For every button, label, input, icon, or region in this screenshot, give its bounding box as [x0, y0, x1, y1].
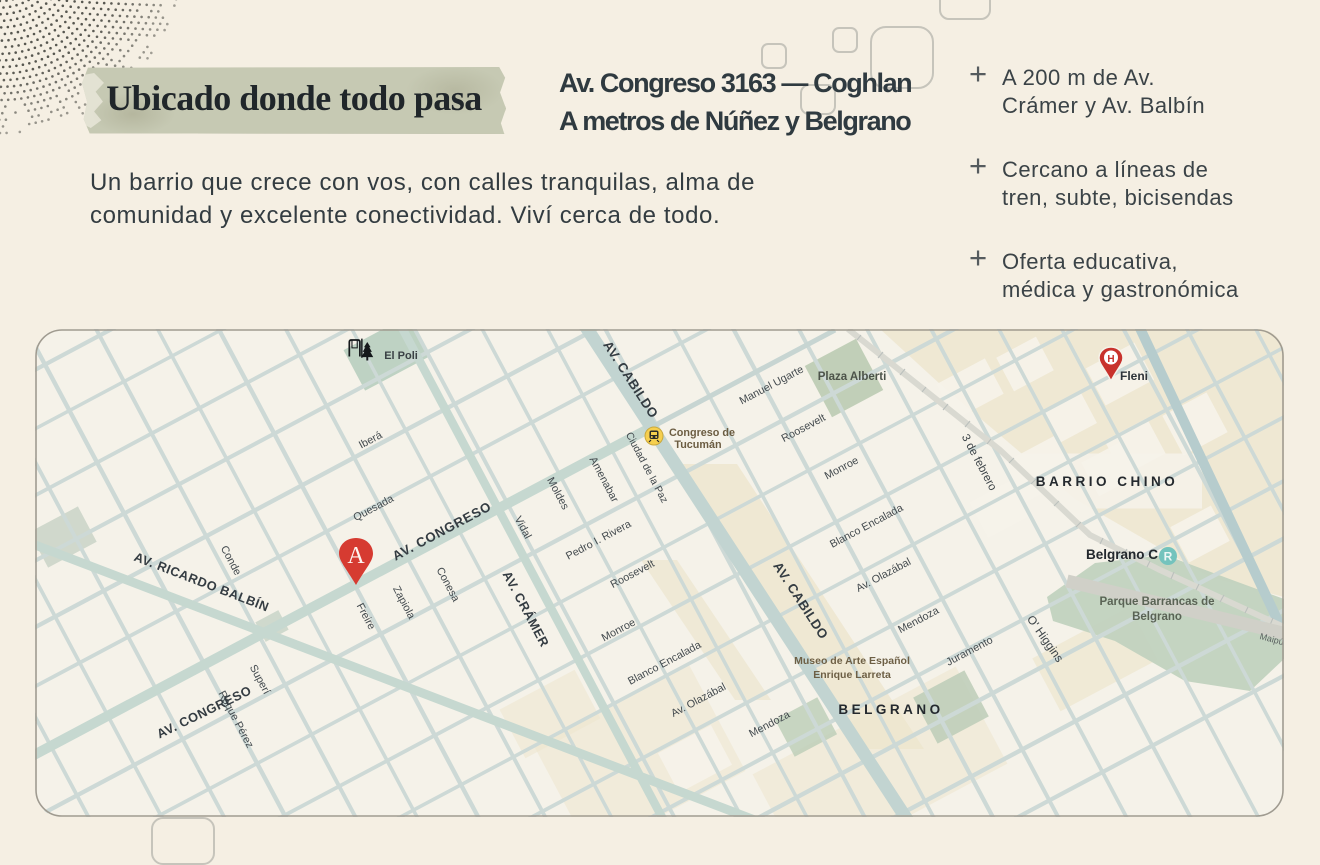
svg-text:Belgrano C: Belgrano C — [1086, 547, 1158, 562]
svg-text:Tucumán: Tucumán — [674, 439, 721, 451]
svg-text:El Poli: El Poli — [384, 350, 418, 362]
svg-text:Fleni: Fleni — [1120, 369, 1148, 383]
svg-text:BARRIO CHINO: BARRIO CHINO — [1036, 474, 1179, 489]
svg-text:Enrique Larreta: Enrique Larreta — [813, 669, 891, 681]
svg-text:Congreso de: Congreso de — [669, 427, 735, 439]
svg-text:BELGRANO: BELGRANO — [838, 702, 943, 717]
svg-text:H: H — [1107, 354, 1114, 365]
svg-text:Plaza Alberti: Plaza Alberti — [818, 371, 887, 383]
svg-text:R: R — [1164, 550, 1173, 564]
svg-text:Parque Barrancas de: Parque Barrancas de — [1099, 596, 1214, 608]
svg-text:Belgrano: Belgrano — [1132, 611, 1182, 623]
svg-text:Museo de Arte Español: Museo de Arte Español — [794, 655, 910, 667]
svg-text:A: A — [347, 543, 365, 569]
